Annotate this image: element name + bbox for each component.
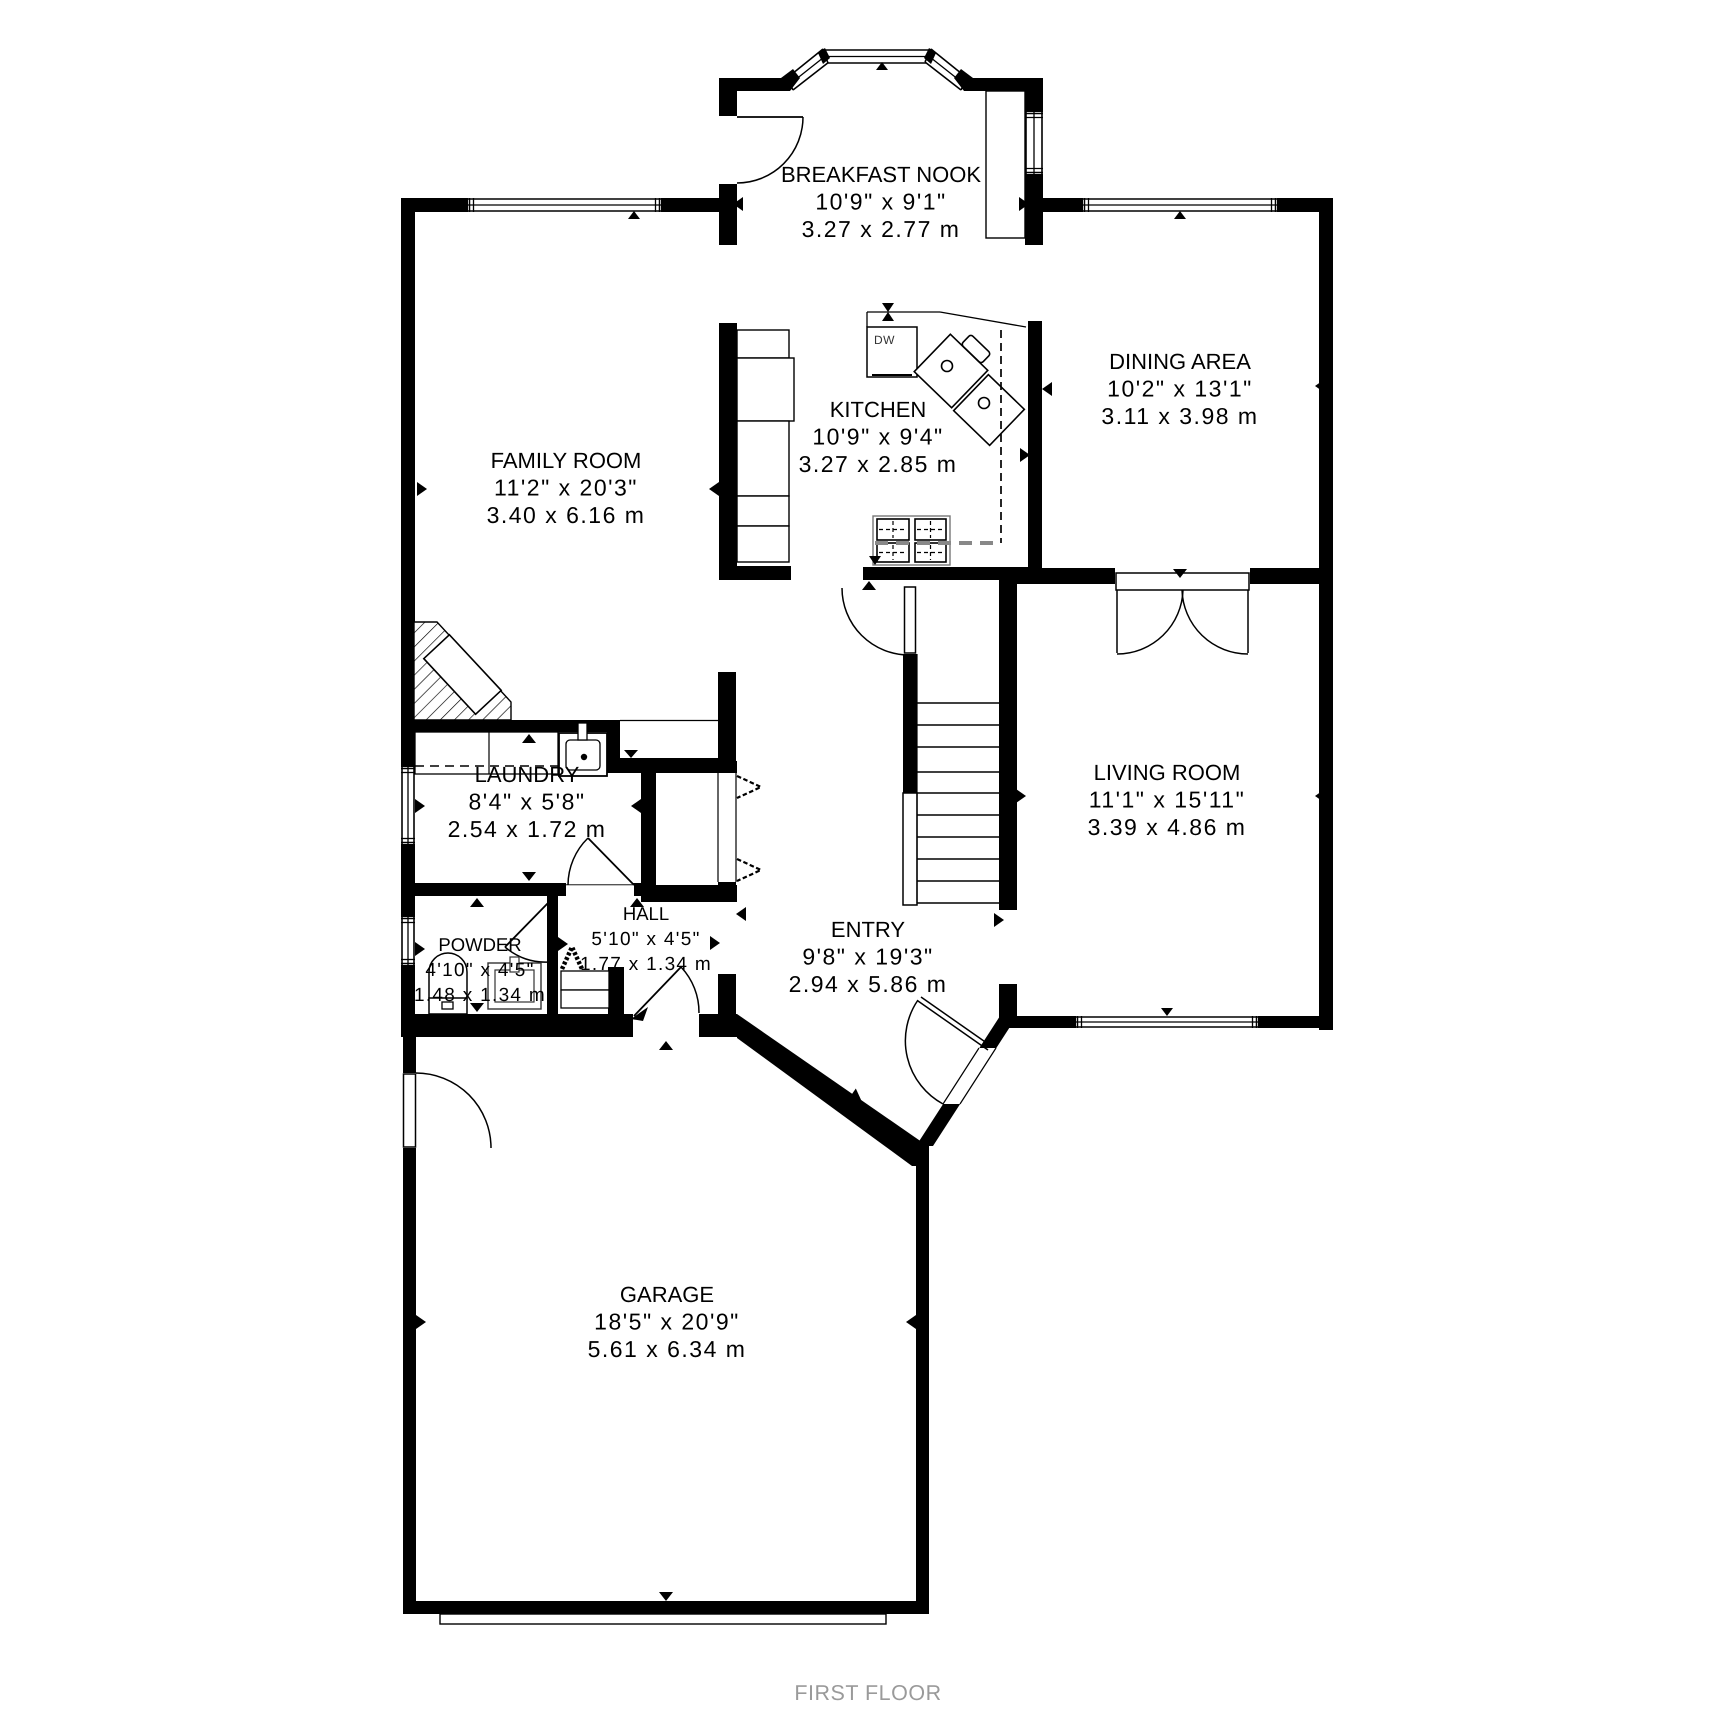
svg-text:3.27 x 2.85 m: 3.27 x 2.85 m — [799, 451, 958, 477]
svg-text:3.40 x 6.16 m: 3.40 x 6.16 m — [487, 502, 646, 528]
svg-text:10'9" x 9'4": 10'9" x 9'4" — [812, 423, 943, 449]
svg-text:5'10" x 4'5": 5'10" x 4'5" — [591, 929, 700, 950]
svg-text:BREAKFAST NOOK: BREAKFAST NOOK — [781, 162, 981, 187]
svg-text:FIRST FLOOR: FIRST FLOOR — [794, 1681, 941, 1705]
svg-text:LAUNDRY: LAUNDRY — [475, 762, 580, 787]
svg-text:11'1" x 15'11": 11'1" x 15'11" — [1089, 786, 1246, 812]
svg-text:3.39 x 4.86 m: 3.39 x 4.86 m — [1088, 814, 1247, 840]
svg-text:2.54 x 1.72 m: 2.54 x 1.72 m — [448, 816, 607, 842]
svg-text:8'4" x 5'8": 8'4" x 5'8" — [468, 788, 585, 814]
svg-text:10'9" x 9'1": 10'9" x 9'1" — [815, 188, 946, 214]
svg-text:FAMILY ROOM: FAMILY ROOM — [491, 448, 642, 473]
svg-text:11'2" x 20'3": 11'2" x 20'3" — [494, 474, 638, 500]
svg-text:DW: DW — [874, 333, 895, 347]
svg-text:18'5" x 20'9": 18'5" x 20'9" — [594, 1308, 740, 1334]
svg-text:HALL: HALL — [623, 903, 669, 924]
svg-text:DINING AREA: DINING AREA — [1109, 349, 1251, 374]
svg-text:2.94 x 5.86 m: 2.94 x 5.86 m — [789, 971, 948, 997]
svg-text:KITCHEN: KITCHEN — [830, 397, 927, 422]
svg-text:5.61 x 6.34 m: 5.61 x 6.34 m — [588, 1336, 747, 1362]
svg-text:ENTRY: ENTRY — [831, 917, 906, 942]
svg-text:LIVING ROOM: LIVING ROOM — [1094, 760, 1241, 785]
svg-text:4'10" x 4'5": 4'10" x 4'5" — [425, 960, 534, 981]
svg-text:9'8" x 19'3": 9'8" x 19'3" — [802, 943, 933, 969]
svg-text:10'2" x 13'1": 10'2" x 13'1" — [1107, 375, 1253, 401]
svg-text:3.11 x 3.98 m: 3.11 x 3.98 m — [1101, 403, 1258, 429]
svg-text:GARAGE: GARAGE — [620, 1282, 714, 1307]
svg-text:1.77 x 1.34 m: 1.77 x 1.34 m — [580, 954, 712, 975]
svg-text:3.27 x 2.77 m: 3.27 x 2.77 m — [802, 216, 961, 242]
svg-text:1.48 x 1.34 m: 1.48 x 1.34 m — [414, 985, 546, 1006]
svg-text:POWDER: POWDER — [438, 934, 521, 955]
